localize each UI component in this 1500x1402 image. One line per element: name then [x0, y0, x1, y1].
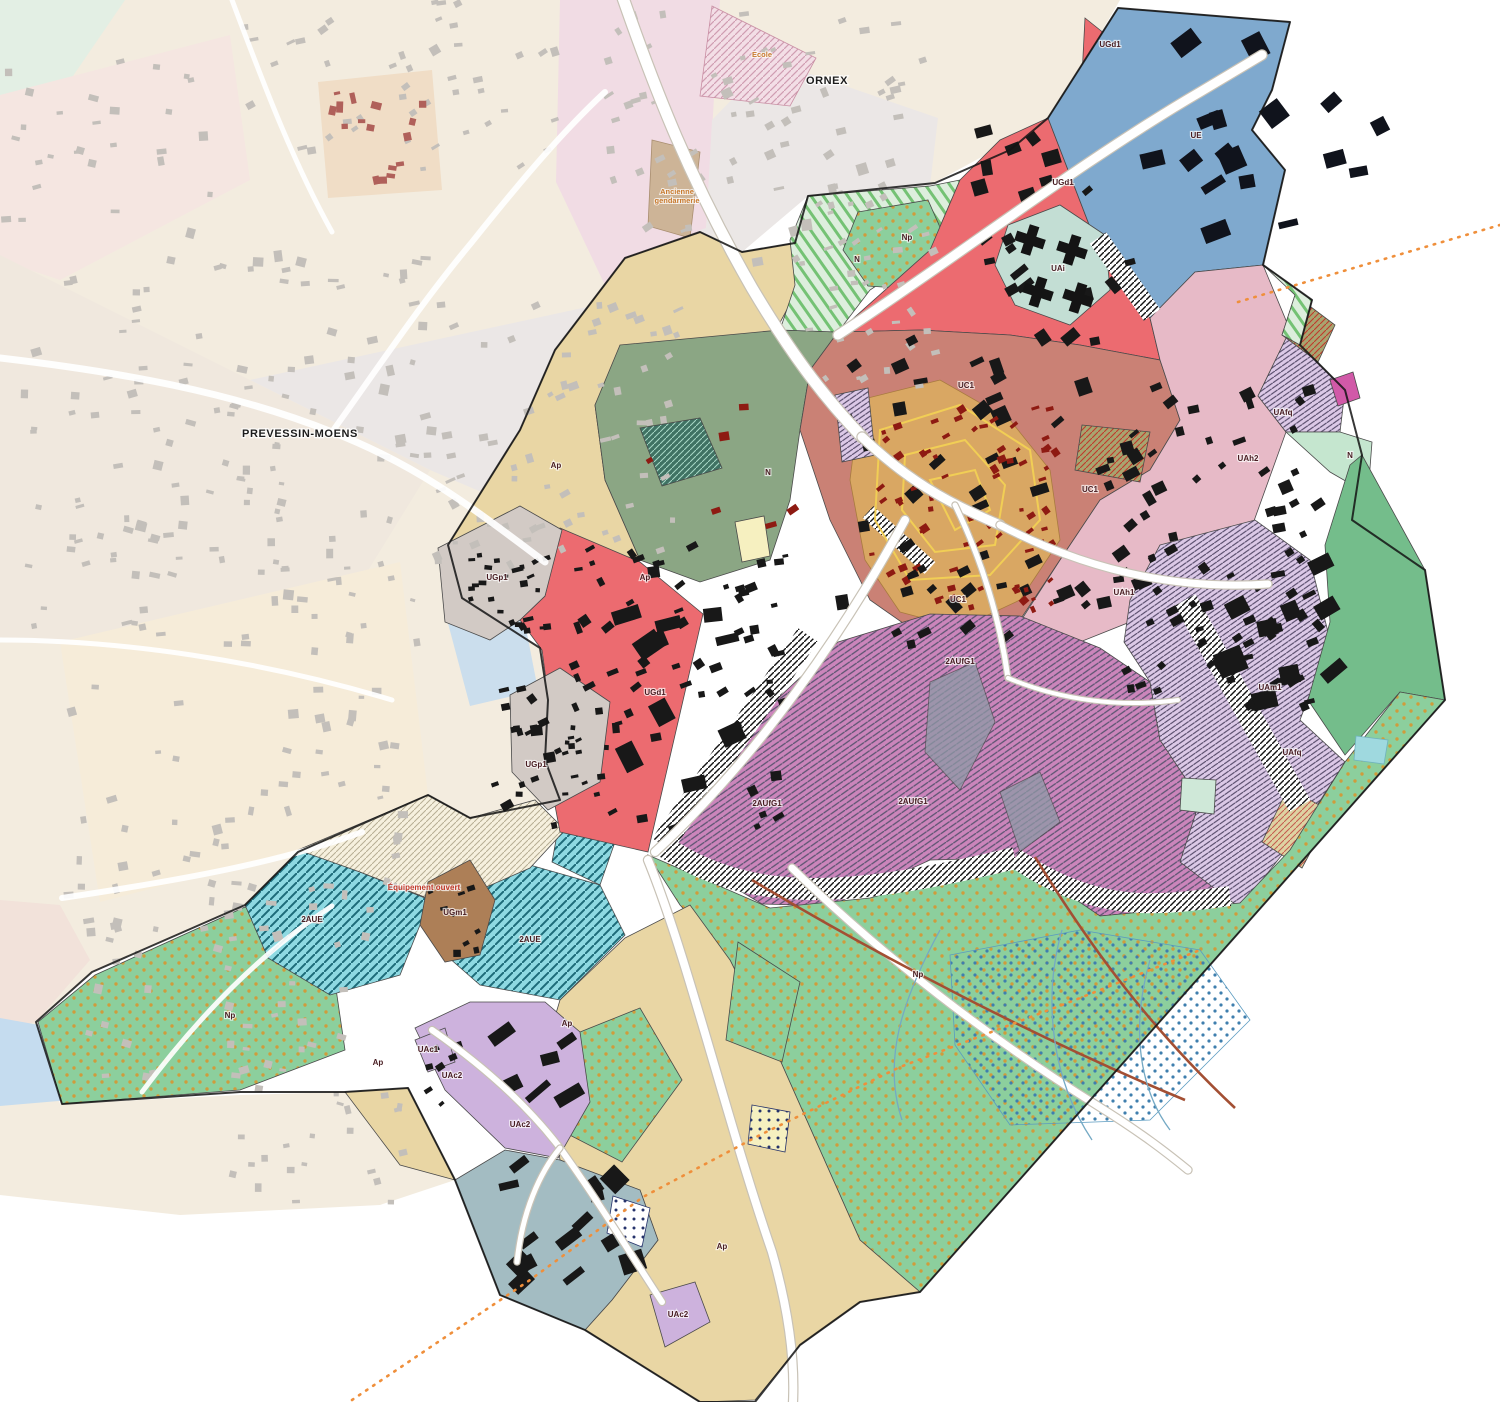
building — [418, 322, 427, 331]
label-ancienne-gendarmerie: Anciennegendarmerie — [654, 187, 699, 205]
building — [381, 1092, 389, 1099]
building — [124, 515, 129, 522]
building — [1323, 149, 1347, 169]
building — [56, 111, 63, 115]
building — [515, 622, 522, 627]
building — [650, 331, 657, 336]
building — [156, 148, 166, 154]
label-uc1: UC1 — [950, 595, 967, 604]
building — [67, 546, 76, 552]
building — [358, 119, 365, 123]
zone-mint-small — [1180, 778, 1216, 814]
building — [111, 210, 120, 214]
building — [225, 817, 235, 823]
building — [606, 146, 615, 154]
building — [131, 621, 138, 626]
building — [481, 342, 488, 348]
building — [80, 816, 87, 824]
building — [366, 124, 375, 132]
label-np: Np — [913, 970, 924, 979]
building — [435, 557, 442, 564]
building — [133, 289, 140, 295]
building — [110, 142, 117, 147]
building — [247, 488, 253, 495]
building — [523, 627, 530, 633]
building — [374, 765, 380, 768]
label-n: N — [765, 468, 771, 477]
building — [343, 119, 352, 125]
building — [271, 596, 278, 606]
building — [86, 928, 95, 937]
building — [390, 742, 400, 749]
building — [670, 517, 675, 522]
label-uah2: UAh2 — [1238, 454, 1259, 463]
label-n: N — [1347, 451, 1353, 460]
building — [398, 811, 408, 818]
building — [117, 861, 128, 871]
label-uc1: UC1 — [958, 381, 975, 390]
building — [382, 786, 390, 793]
building — [774, 558, 784, 565]
label-ugd1: UGd1 — [1099, 40, 1121, 49]
building — [494, 558, 500, 563]
building — [278, 1001, 286, 1007]
building — [248, 266, 254, 272]
building — [155, 750, 161, 754]
label-ue: UE — [1190, 131, 1202, 140]
building — [516, 791, 523, 796]
building — [1272, 522, 1286, 533]
building — [309, 408, 316, 415]
building — [709, 662, 723, 673]
building — [637, 420, 648, 425]
building — [513, 725, 520, 729]
building — [31, 623, 37, 629]
building — [323, 883, 334, 888]
building — [366, 907, 373, 913]
building — [309, 1133, 315, 1138]
building — [5, 69, 12, 76]
building — [595, 707, 603, 715]
building — [540, 626, 545, 629]
building — [348, 710, 357, 721]
building — [297, 596, 308, 602]
building — [928, 506, 934, 512]
building — [153, 926, 159, 932]
building — [209, 547, 218, 552]
building — [144, 985, 152, 993]
label-uac1: UAc1 — [418, 1045, 439, 1054]
building — [347, 1128, 354, 1134]
building — [174, 700, 184, 706]
building — [279, 781, 289, 787]
zoning-map-page: PREVESSIN-MOENSORNEXEcoleAnciennegendarm… — [0, 0, 1500, 1402]
building — [241, 634, 249, 640]
building — [674, 580, 685, 590]
building — [313, 687, 323, 693]
building — [261, 789, 269, 796]
building — [307, 146, 317, 154]
building — [78, 884, 85, 890]
building — [301, 281, 310, 286]
label-2aufg1: 2AUfG1 — [752, 799, 782, 808]
building — [102, 1073, 110, 1078]
building — [255, 1183, 262, 1192]
building — [273, 559, 279, 565]
building — [165, 109, 172, 115]
building — [172, 755, 179, 762]
building — [339, 987, 348, 993]
building — [287, 1167, 295, 1173]
building — [341, 124, 348, 129]
label-2aue: 2AUE — [301, 915, 323, 924]
building — [715, 632, 739, 646]
building — [231, 881, 241, 886]
building — [91, 412, 100, 419]
building — [291, 606, 298, 614]
building — [288, 709, 299, 719]
building — [31, 427, 37, 431]
building — [604, 745, 609, 750]
building — [172, 820, 178, 826]
building — [892, 401, 907, 416]
zone-diamond-yellow-dots — [748, 1105, 790, 1152]
building — [209, 897, 215, 906]
building — [244, 500, 250, 505]
building — [596, 302, 602, 309]
label-ap: Ap — [551, 461, 562, 470]
building — [1310, 497, 1325, 511]
building — [703, 607, 723, 623]
building — [180, 495, 189, 505]
building — [782, 554, 788, 558]
building — [388, 1200, 394, 1205]
building — [273, 250, 283, 262]
building — [420, 167, 426, 172]
building — [801, 219, 813, 232]
building — [119, 330, 126, 333]
building — [268, 376, 274, 382]
building — [497, 610, 503, 614]
building — [437, 302, 446, 309]
label-2aue: 2AUE — [519, 935, 541, 944]
building — [739, 404, 749, 411]
building — [292, 1200, 300, 1204]
label-2aufg1: 2AUfG1 — [898, 797, 928, 806]
building — [698, 691, 705, 698]
boundary-dashed-orange-1 — [1238, 225, 1500, 302]
zone-Np-bluedots — [950, 930, 1250, 1125]
building — [1290, 468, 1299, 477]
building — [568, 743, 575, 749]
label-np: Np — [902, 233, 913, 242]
building — [562, 792, 568, 795]
building — [453, 950, 461, 957]
building — [143, 287, 149, 293]
building — [766, 679, 773, 684]
building — [272, 444, 280, 450]
building — [718, 431, 729, 441]
building — [243, 466, 250, 475]
building — [1019, 508, 1024, 512]
building — [76, 856, 82, 865]
label-uah1: UAh1 — [1114, 588, 1135, 597]
building — [299, 1047, 305, 1053]
building — [304, 355, 314, 364]
building — [1089, 336, 1100, 346]
building — [468, 558, 475, 561]
building — [1, 216, 11, 223]
building — [472, 583, 479, 587]
building — [311, 647, 318, 655]
zone-pond — [1354, 736, 1388, 764]
building — [520, 580, 529, 587]
building — [597, 773, 605, 780]
building — [477, 553, 482, 558]
building — [266, 900, 277, 906]
building — [746, 110, 755, 117]
building — [241, 641, 251, 647]
building — [214, 407, 221, 413]
building — [64, 280, 73, 286]
building — [261, 1155, 268, 1162]
building — [771, 603, 778, 608]
building — [424, 1086, 433, 1094]
building — [315, 713, 326, 723]
label-uac2: UAc2 — [668, 1310, 689, 1319]
building — [267, 538, 275, 546]
label-uam1: UAm1 — [1258, 683, 1282, 692]
building — [519, 564, 524, 569]
label-prevessin-moens: PREVESSIN-MOENS — [242, 428, 358, 440]
building — [91, 684, 99, 689]
building — [326, 549, 333, 559]
building — [893, 247, 903, 254]
building — [224, 641, 232, 647]
label-ecole: Ecole — [752, 50, 772, 59]
building — [454, 43, 463, 47]
label-ap: Ap — [640, 573, 651, 582]
label-2aufg1: 2AUfG1 — [945, 657, 975, 666]
building — [270, 466, 276, 472]
label-ugm1: UGm1 — [443, 908, 467, 917]
building — [178, 521, 188, 530]
building — [799, 261, 805, 266]
building — [1278, 218, 1299, 229]
building — [289, 981, 295, 985]
building — [315, 749, 323, 754]
building — [259, 925, 269, 931]
label-uai: UAi — [1051, 264, 1065, 273]
building — [426, 426, 437, 435]
building — [640, 473, 648, 478]
building — [438, 1101, 444, 1107]
building — [309, 903, 317, 910]
label-ornex: ORNEX — [806, 75, 848, 87]
building — [1238, 174, 1255, 189]
building — [400, 269, 408, 279]
building — [221, 843, 229, 849]
building — [21, 124, 27, 130]
label-ugp1: UGp1 — [525, 760, 547, 769]
building — [243, 1024, 253, 1029]
building — [659, 10, 666, 18]
building — [512, 476, 518, 482]
building — [139, 366, 148, 371]
building — [292, 771, 301, 778]
building — [1320, 91, 1342, 113]
building — [131, 410, 140, 414]
building — [195, 333, 202, 339]
building — [562, 352, 571, 357]
building — [336, 101, 343, 112]
label-n: N — [854, 255, 860, 264]
building — [344, 566, 350, 569]
building — [693, 658, 706, 671]
building — [121, 825, 129, 833]
building — [478, 580, 486, 585]
building — [359, 696, 365, 699]
building — [1349, 165, 1369, 178]
building — [30, 430, 37, 434]
building — [420, 256, 430, 261]
building — [923, 328, 931, 334]
building — [69, 534, 76, 540]
building — [1299, 530, 1307, 538]
building — [329, 536, 336, 542]
building — [248, 1162, 255, 1167]
building — [111, 552, 118, 558]
building — [453, 541, 458, 544]
building — [110, 107, 120, 115]
building — [71, 392, 80, 400]
building — [219, 556, 225, 563]
building — [328, 279, 339, 283]
label-équipement-ouvert: Équipement ouvert — [388, 883, 461, 892]
building — [847, 270, 856, 277]
building — [336, 577, 342, 585]
building — [253, 257, 264, 267]
label-uac2: UAc2 — [442, 1071, 463, 1080]
label-ap: Ap — [562, 1019, 573, 1028]
building — [419, 101, 426, 108]
building — [347, 357, 355, 364]
building — [399, 94, 407, 100]
building — [1289, 498, 1300, 508]
label-ugp1: UGp1 — [486, 573, 508, 582]
building — [282, 566, 289, 570]
building — [723, 584, 729, 590]
building — [424, 452, 432, 458]
building — [884, 367, 890, 374]
building — [18, 218, 26, 222]
label-ap: Ap — [373, 1058, 384, 1067]
building — [231, 1072, 241, 1078]
building — [131, 571, 140, 579]
building — [770, 770, 782, 781]
label-np: Np — [225, 1011, 236, 1020]
zoning-map-canvas: PREVESSIN-MOENSORNEXEcoleAnciennegendarm… — [0, 0, 1500, 1402]
building — [288, 367, 295, 373]
building — [199, 131, 209, 141]
building — [238, 1134, 245, 1139]
building — [153, 64, 161, 70]
building — [176, 557, 183, 560]
building — [716, 686, 728, 697]
building — [1127, 684, 1135, 693]
building — [360, 510, 367, 518]
building — [858, 520, 870, 532]
building — [207, 192, 213, 198]
label-uafq: UAfq — [1282, 748, 1301, 757]
building — [227, 412, 235, 417]
building — [394, 832, 403, 842]
building — [501, 109, 508, 113]
label-uc1: UC1 — [1082, 485, 1099, 494]
building — [743, 634, 754, 643]
building — [139, 606, 148, 613]
building — [227, 1041, 234, 1049]
building — [21, 389, 28, 398]
label-uac2: UAc2 — [510, 1120, 531, 1129]
building — [749, 625, 759, 635]
building — [484, 565, 492, 570]
building — [660, 416, 667, 424]
building — [41, 606, 47, 610]
building — [403, 132, 412, 141]
label-ap: Ap — [717, 1242, 728, 1251]
building — [110, 558, 116, 563]
building — [535, 588, 540, 592]
building — [488, 597, 495, 602]
label-ugd1: UGd1 — [1052, 178, 1074, 187]
building — [297, 1018, 306, 1026]
building — [342, 890, 348, 900]
building — [360, 623, 366, 629]
label-ugd1: UGd1 — [644, 688, 666, 697]
building — [1370, 116, 1390, 137]
building — [851, 281, 859, 286]
building — [570, 725, 575, 730]
building — [1006, 458, 1013, 464]
building — [731, 112, 737, 118]
building — [413, 638, 420, 646]
label-uafq: UAfq — [1273, 408, 1292, 417]
building — [479, 433, 489, 441]
building — [311, 614, 317, 619]
building — [283, 589, 294, 600]
building — [258, 569, 265, 574]
building — [452, 89, 459, 95]
building — [1278, 479, 1294, 495]
